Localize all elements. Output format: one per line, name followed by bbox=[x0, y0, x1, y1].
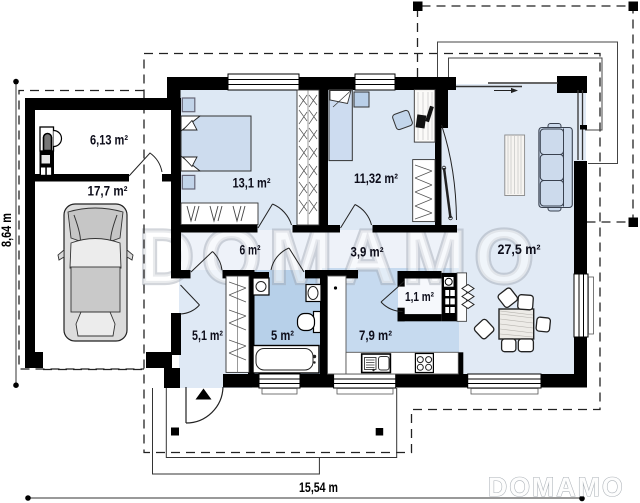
svg-text:7,9 m²: 7,9 m² bbox=[359, 327, 392, 343]
svg-text:5,1 m²: 5,1 m² bbox=[192, 327, 223, 343]
svg-text:5 m²: 5 m² bbox=[271, 327, 294, 343]
svg-text:DOMAMO: DOMAMO bbox=[488, 472, 625, 502]
svg-text:6 m²: 6 m² bbox=[240, 242, 261, 258]
svg-text:6,13 m²: 6,13 m² bbox=[90, 132, 128, 148]
svg-text:13,1 m²: 13,1 m² bbox=[233, 175, 271, 191]
svg-text:11,32 m²: 11,32 m² bbox=[354, 170, 398, 186]
svg-text:17,7 m²: 17,7 m² bbox=[88, 183, 128, 199]
svg-text:1,1 m²: 1,1 m² bbox=[405, 289, 435, 304]
svg-text:8,64 m: 8,64 m bbox=[0, 213, 14, 247]
svg-text:27,5 m²: 27,5 m² bbox=[498, 241, 541, 257]
svg-text:15,54 m: 15,54 m bbox=[299, 480, 338, 495]
svg-text:3,9 m²: 3,9 m² bbox=[351, 244, 384, 260]
